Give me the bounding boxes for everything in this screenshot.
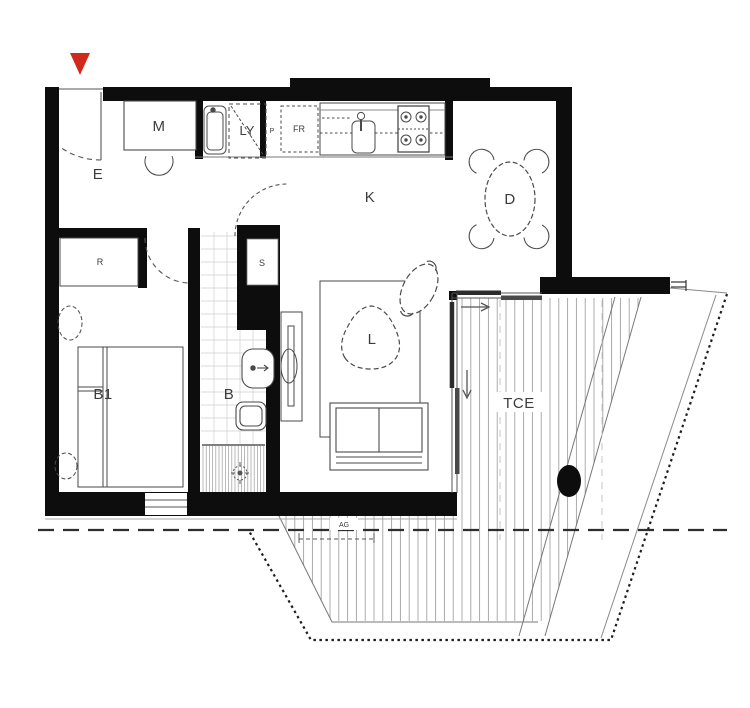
sliding-panel <box>455 388 460 474</box>
toilet <box>242 349 274 388</box>
wall-top-c <box>490 87 572 101</box>
terrace-column <box>557 465 581 497</box>
dining-chair <box>523 144 554 173</box>
sliding-panel <box>501 296 542 301</box>
sofa <box>330 403 428 470</box>
shower-rose-icon <box>231 462 249 484</box>
glazing-corner-post <box>449 291 457 300</box>
bedroom-zone <box>55 306 183 487</box>
label-dining: D <box>504 191 515 208</box>
wall-robe-top <box>59 228 147 238</box>
dining-chair <box>464 144 495 174</box>
terrace-inner-edge <box>277 512 538 622</box>
wall-bath-left <box>188 228 200 493</box>
armchair <box>391 255 448 323</box>
desk-chair <box>145 156 173 175</box>
label-robe: R <box>97 257 104 267</box>
label-storage: S <box>259 258 265 268</box>
living-zone <box>281 255 447 470</box>
wall-bottom <box>45 492 457 516</box>
bedside-table <box>58 306 82 340</box>
floor-plan-svg: E M LY P FR K D R S B B1 L TCE AG <box>0 0 750 708</box>
label-entry: E <box>93 166 104 183</box>
ag-label-group: AG <box>330 518 358 530</box>
label-fridge: FR <box>293 124 305 134</box>
terrace-inner-right-line <box>601 295 716 638</box>
label-laundry: LY <box>240 123 255 138</box>
wall-left <box>45 87 59 516</box>
terrace-glazing <box>450 291 542 494</box>
bedroom-window <box>145 493 187 515</box>
label-bedroom1: B1 <box>93 386 112 403</box>
label-bathroom: B <box>224 386 235 403</box>
label-kitchen: K <box>365 189 376 206</box>
shower-hatch <box>203 446 264 497</box>
sliding-panel <box>450 302 455 388</box>
floor-plan-page: E M LY P FR K D R S B B1 L TCE AG <box>0 0 750 708</box>
wall-robe-pier <box>138 228 147 288</box>
wall-top-a <box>103 87 293 101</box>
study-nook <box>124 101 196 175</box>
kitchen-sink <box>352 112 375 153</box>
wall-top-b <box>290 78 490 101</box>
label-living: L <box>368 331 377 348</box>
bed <box>78 347 183 487</box>
label-pantry: P <box>270 128 275 135</box>
terrace-label-group: TCE <box>494 392 545 412</box>
terrace-diagonal-1 <box>545 297 641 636</box>
entry-marker-icon <box>70 53 90 75</box>
tv-unit <box>281 312 302 421</box>
tub-tap-icon <box>211 108 215 112</box>
basin <box>236 402 266 430</box>
wall-terrace-top <box>540 277 670 294</box>
wall-kitchen-pier-2 <box>260 101 266 158</box>
kitchen-zone <box>195 103 453 157</box>
sliding-panel <box>456 291 501 296</box>
label-annotation: AG <box>339 522 349 529</box>
dining-chair <box>464 224 495 254</box>
entry-door-arc <box>60 147 101 160</box>
bedroom-door-arc <box>145 238 190 283</box>
cooktop <box>398 106 429 152</box>
label-study: M <box>153 118 166 135</box>
wall-kitchen-end <box>445 92 453 160</box>
wall-right-dining <box>556 101 572 277</box>
dining-chair <box>523 224 554 253</box>
label-terrace: TCE <box>503 395 535 412</box>
